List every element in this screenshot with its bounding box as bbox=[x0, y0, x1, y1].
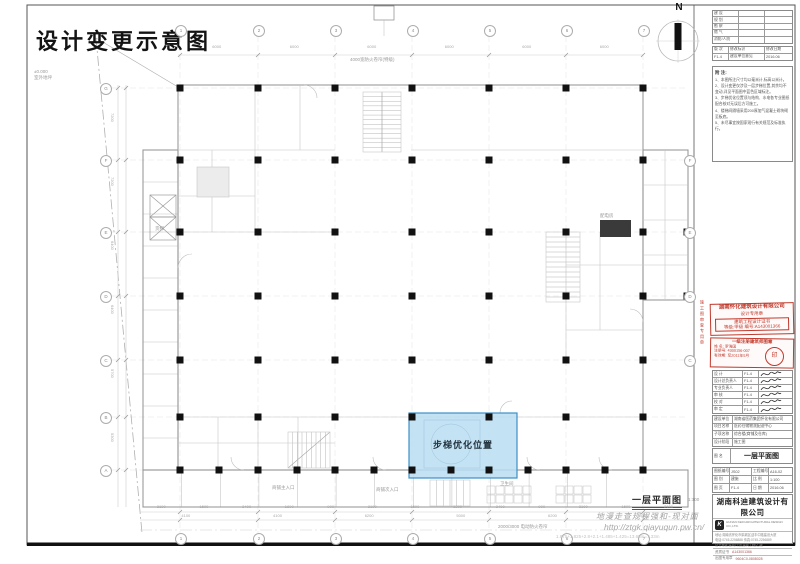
revision-table: 版 次修改标识修改日期F1-4建设单位意见2016.06 bbox=[712, 46, 793, 61]
grid-bubble-right: E bbox=[684, 227, 696, 239]
dimension-value: 6000 bbox=[212, 44, 221, 49]
signature-doc: F1-4 bbox=[743, 385, 759, 391]
dimension-value: 1500 bbox=[200, 504, 209, 509]
project-label: 设计阶段 bbox=[713, 439, 733, 447]
approval-label: 规 划 bbox=[713, 17, 739, 22]
grid-bubble-left: A bbox=[100, 465, 112, 477]
dimension-value: 2100 bbox=[157, 504, 166, 509]
note-line: 5、未尽事宜按国家现行有关规范及标准执行。 bbox=[715, 120, 790, 132]
dimension-value: 1500 bbox=[621, 504, 630, 509]
revision-header-cell: 版 次 bbox=[713, 47, 729, 53]
signature-mark bbox=[759, 406, 792, 413]
approval-label: 勘 察 bbox=[713, 24, 739, 29]
signature-doc: F1-4 bbox=[743, 371, 759, 377]
signature-doc: F1-4 bbox=[743, 378, 759, 384]
revision-cell: 建设单位意见 bbox=[729, 54, 765, 61]
number-value: JS02 bbox=[730, 468, 752, 475]
signature-mark bbox=[759, 378, 792, 384]
number-value: 2016.06 bbox=[769, 484, 792, 492]
plan-annotation: 配电房 bbox=[600, 213, 614, 219]
dimension-value: 6000 bbox=[290, 44, 299, 49]
signature-mark bbox=[759, 392, 792, 398]
round-seal-icon: 印 bbox=[765, 347, 784, 366]
plan-annotation: 4000宽防火卷帘(特级) bbox=[350, 57, 395, 63]
dimension-value: 7200 bbox=[110, 177, 115, 186]
grid-bubble-bottom: 5 bbox=[484, 533, 496, 545]
sheet-name-box: 图 名 一层平面图 bbox=[712, 448, 793, 464]
plan-annotation: 2000/3000 电动防火卷帘 bbox=[498, 524, 548, 530]
approval-value bbox=[765, 37, 792, 43]
project-info-table: 建设单位湖南省医药集团怀化有限公司项目名称医药仓储物流配送中心子项名称综合楼(商… bbox=[712, 415, 793, 447]
approval-value bbox=[739, 11, 765, 16]
signature-role: 设 计 bbox=[713, 371, 743, 377]
number-value: 1:100 bbox=[769, 476, 792, 483]
grid-bubble-bottom: 1 bbox=[175, 533, 187, 545]
plan-annotation: 货梯 bbox=[155, 226, 164, 232]
grid-bubble-left: G bbox=[100, 83, 112, 95]
grid-bubble-top: 3 bbox=[330, 25, 342, 37]
dimension-value: 900 bbox=[327, 504, 334, 509]
equipment-room-block bbox=[600, 220, 631, 237]
dimension-value: 6200 bbox=[365, 513, 374, 518]
signature-table: 设 计F1-4设计总负责人F1-4专业负责人F1-4审 核F1-4校 对F1-4… bbox=[712, 370, 793, 414]
plan-annotation: 商铺次入口 bbox=[376, 487, 399, 493]
grid-bubble-right: F bbox=[684, 155, 696, 167]
grid-bubble-top: 2 bbox=[253, 25, 265, 37]
signature-mark bbox=[759, 399, 792, 405]
dimension-value: 6400 bbox=[110, 305, 115, 314]
dimension-value: 1300 bbox=[453, 504, 462, 509]
dimension-value: 1500 bbox=[410, 504, 419, 509]
company-name-en: HUNAN KEDI ARCHITECTURAL DESIGN CO.,LTD. bbox=[726, 521, 790, 529]
company-info-line: 证书等级:建筑行业(建筑工程)乙级 bbox=[715, 543, 790, 548]
number-value: A16-02 bbox=[769, 468, 792, 475]
dimension-value: 6000 bbox=[367, 44, 376, 49]
company-block: 湖南科迪建筑设计有限公司 K HUNAN KEDI ARCHITECTURAL … bbox=[712, 494, 793, 544]
notes-box: 附 注: 1、本图所注尺寸均以毫米计,标高以米计。2、设计变更仅涉及一层步梯位置… bbox=[712, 66, 793, 162]
stamp-cert: 建筑工程设计证书等级:甲级 编号:A143001366 bbox=[715, 317, 789, 332]
floor-plan-canvas bbox=[0, 0, 800, 564]
approvals-table: 建 设规 划勘 察燃 气消防/人防 bbox=[712, 10, 793, 44]
signature-role: 审 核 bbox=[713, 392, 743, 398]
project-label: 子项名称 bbox=[713, 431, 733, 438]
revision-cell: 2016.06 bbox=[765, 54, 792, 61]
dimension-column-left: 720072006400640057005300 bbox=[110, 85, 115, 470]
revision-header-cell: 修改日期 bbox=[765, 47, 792, 53]
project-label: 项目名称 bbox=[713, 424, 733, 431]
dimension-value: 4100 bbox=[273, 513, 282, 518]
review-stamp-vertical-text: 施工图审查专用章 bbox=[699, 300, 705, 348]
signature-doc: F1-4 bbox=[743, 392, 759, 398]
dimension-value: 2100 bbox=[368, 504, 377, 509]
drawing-sheet: 设计变更示意图 N 步梯优化位置 一层平面图 1:100 地漫走查规程强和-现对… bbox=[0, 0, 800, 564]
grid-bubble-left: F bbox=[100, 155, 112, 167]
approval-value bbox=[765, 30, 792, 35]
dimension-value: 5700 bbox=[110, 369, 115, 378]
approval-value bbox=[765, 17, 792, 22]
grid-bubble-right: D bbox=[684, 291, 696, 303]
number-label: 图 页 bbox=[713, 484, 730, 492]
approval-value bbox=[739, 17, 765, 22]
project-value: 施工图 bbox=[733, 439, 792, 447]
project-value: 医药仓储物流配送中心 bbox=[733, 424, 792, 431]
grid-bubble-top: 6 bbox=[561, 25, 573, 37]
grid-bubble-top: 1 bbox=[175, 25, 187, 37]
notes-title: 附 注: bbox=[715, 69, 790, 76]
grid-bubble-left: E bbox=[100, 227, 112, 239]
signature-doc: F1-4 bbox=[743, 399, 759, 405]
dimension-value: 3400 bbox=[496, 504, 505, 509]
grid-bubble-top: 4 bbox=[407, 25, 419, 37]
north-label: N bbox=[669, 2, 689, 13]
number-label: 工程编号 bbox=[752, 468, 769, 475]
grid-bubble-left: C bbox=[100, 355, 112, 367]
signature-role: 专业负责人 bbox=[713, 385, 743, 391]
number-value: F1-4 bbox=[730, 484, 752, 492]
dimension-value: 5000 bbox=[456, 513, 465, 518]
signature-role: 校 对 bbox=[713, 399, 743, 405]
company-bottom-row: 出图专用章9604C0-0808028 bbox=[713, 555, 792, 562]
revision-header-cell: 修改标识 bbox=[729, 47, 765, 53]
number-label: 比 例 bbox=[752, 476, 769, 483]
dimension-value: 2100 bbox=[664, 504, 673, 509]
note-line: 2、设计变更仅涉及一层步梯位置,其余均不变动,详见平面图中蓝色区域标注。 bbox=[715, 83, 790, 95]
revision-cell: F1-4 bbox=[713, 54, 729, 61]
company-info: 地址:湖南省怀化市鹤城区迎丰中路建设大厦电话:0745-2256888 传真:0… bbox=[713, 532, 792, 548]
approval-value bbox=[739, 24, 765, 29]
signature-doc: F1-4 bbox=[743, 406, 759, 413]
sheet-numbers-table: 图纸编号JS02工程编号A16-02图 别建施比 例1:100图 页F1-4日 … bbox=[712, 467, 793, 493]
plan-annotation: 室外地坪 bbox=[34, 75, 52, 81]
approval-label: 建 设 bbox=[713, 11, 739, 16]
plan-annotation: 卫生间 bbox=[500, 481, 514, 487]
approval-value bbox=[765, 24, 792, 29]
dimension-value: 6000 bbox=[522, 44, 531, 49]
dimension-value: 3400 bbox=[242, 504, 251, 509]
grid-bubble-right: C bbox=[684, 355, 696, 367]
grid-bubble-left: B bbox=[100, 412, 112, 424]
grid-bubble-bottom: 3 bbox=[330, 533, 342, 545]
watermark-sum: 1.875+1.825+2.8+2.1+1.485+1.425=13.65m=7… bbox=[556, 534, 659, 539]
signature-role: 设计总负责人 bbox=[713, 378, 743, 384]
company-logo: K bbox=[715, 520, 724, 530]
signature-mark bbox=[759, 385, 792, 391]
sheet-name-value: 一层平面图 bbox=[731, 449, 792, 463]
grid-bubble-bottom: 2 bbox=[253, 533, 265, 545]
watermark-url: http://ztgk.qiayuqun.pw.cn/ bbox=[604, 522, 704, 532]
number-label: 日 期 bbox=[752, 484, 769, 492]
dimension-value: 4100 bbox=[181, 513, 190, 518]
approval-value bbox=[739, 37, 765, 43]
stair-highlight-label: 步梯优化位置 bbox=[412, 438, 514, 451]
plan-annotation: ±0.000 bbox=[34, 69, 48, 74]
dimension-value: 6400 bbox=[110, 241, 115, 250]
grid-bubble-bottom: 4 bbox=[407, 533, 419, 545]
dimension-row-top: 600060006000600060006000 bbox=[178, 44, 643, 49]
grid-bubble-top: 5 bbox=[484, 25, 496, 37]
drawing-scale: 1:100 bbox=[688, 497, 699, 502]
number-label: 图 别 bbox=[713, 476, 730, 483]
approval-label: 燃 气 bbox=[713, 30, 739, 35]
signature-mark bbox=[759, 371, 792, 377]
dimension-value: 6000 bbox=[445, 44, 454, 49]
dimension-value: 900 bbox=[538, 504, 545, 509]
elevator-shaft bbox=[150, 195, 176, 240]
number-value: 建施 bbox=[730, 476, 752, 483]
grid-bubble-left: D bbox=[100, 291, 112, 303]
dimension-value: 5300 bbox=[110, 433, 115, 442]
dimension-value: 6000 bbox=[600, 44, 609, 49]
approval-value bbox=[765, 11, 792, 16]
design-certificate-stamp: 湖南怀化建筑设计有限公司 设计专用章 建筑工程设计证书等级:甲级 编号:A143… bbox=[710, 302, 795, 336]
note-line: 3、步梯优化位置须与结构、水电各专业图纸配合核对无误后方可施工。 bbox=[715, 95, 790, 107]
dimension-row-bottom-1: 2100150034001800900210015001300340090021… bbox=[140, 504, 690, 509]
plan-annotation: 商铺主入口 bbox=[272, 485, 295, 491]
approval-value bbox=[739, 30, 765, 35]
approval-label: 消防/人防 bbox=[713, 37, 739, 43]
dimension-value: 7200 bbox=[110, 113, 115, 122]
watermark-line-1: 地漫走查规程强和-现对面 bbox=[596, 511, 699, 522]
note-line: 4、楼梯间隔墙采用200厚加气混凝土砌块砌至板底。 bbox=[715, 108, 790, 120]
project-value: 湖南省医药集团怀化有限公司 bbox=[733, 416, 792, 423]
project-value: 综合楼(商铺及仓库) bbox=[733, 431, 792, 438]
dimension-value: 1800 bbox=[285, 504, 294, 509]
project-label: 建设单位 bbox=[713, 416, 733, 423]
north-arrow-icon bbox=[656, 19, 700, 63]
sheet-name-label: 图 名 bbox=[713, 449, 731, 463]
number-label: 图纸编号 bbox=[713, 468, 730, 475]
company-name: 湖南科迪建筑设计有限公司 bbox=[713, 495, 792, 518]
grid-bubble-top: 7 bbox=[638, 25, 650, 37]
signature-role: 审 定 bbox=[713, 406, 743, 413]
dimension-value: 6200 bbox=[548, 513, 557, 518]
dimension-value: 2100 bbox=[579, 504, 588, 509]
